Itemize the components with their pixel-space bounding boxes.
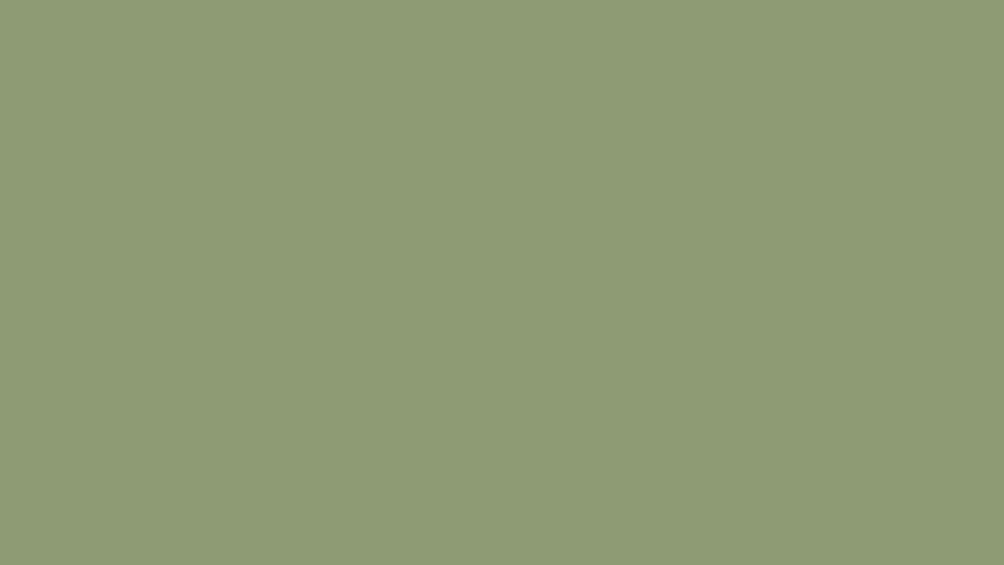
aerial-campus-rendering: Aerial 3D rendering of a sustainable gre… bbox=[0, 0, 1004, 565]
scene-canvas bbox=[0, 0, 1004, 565]
